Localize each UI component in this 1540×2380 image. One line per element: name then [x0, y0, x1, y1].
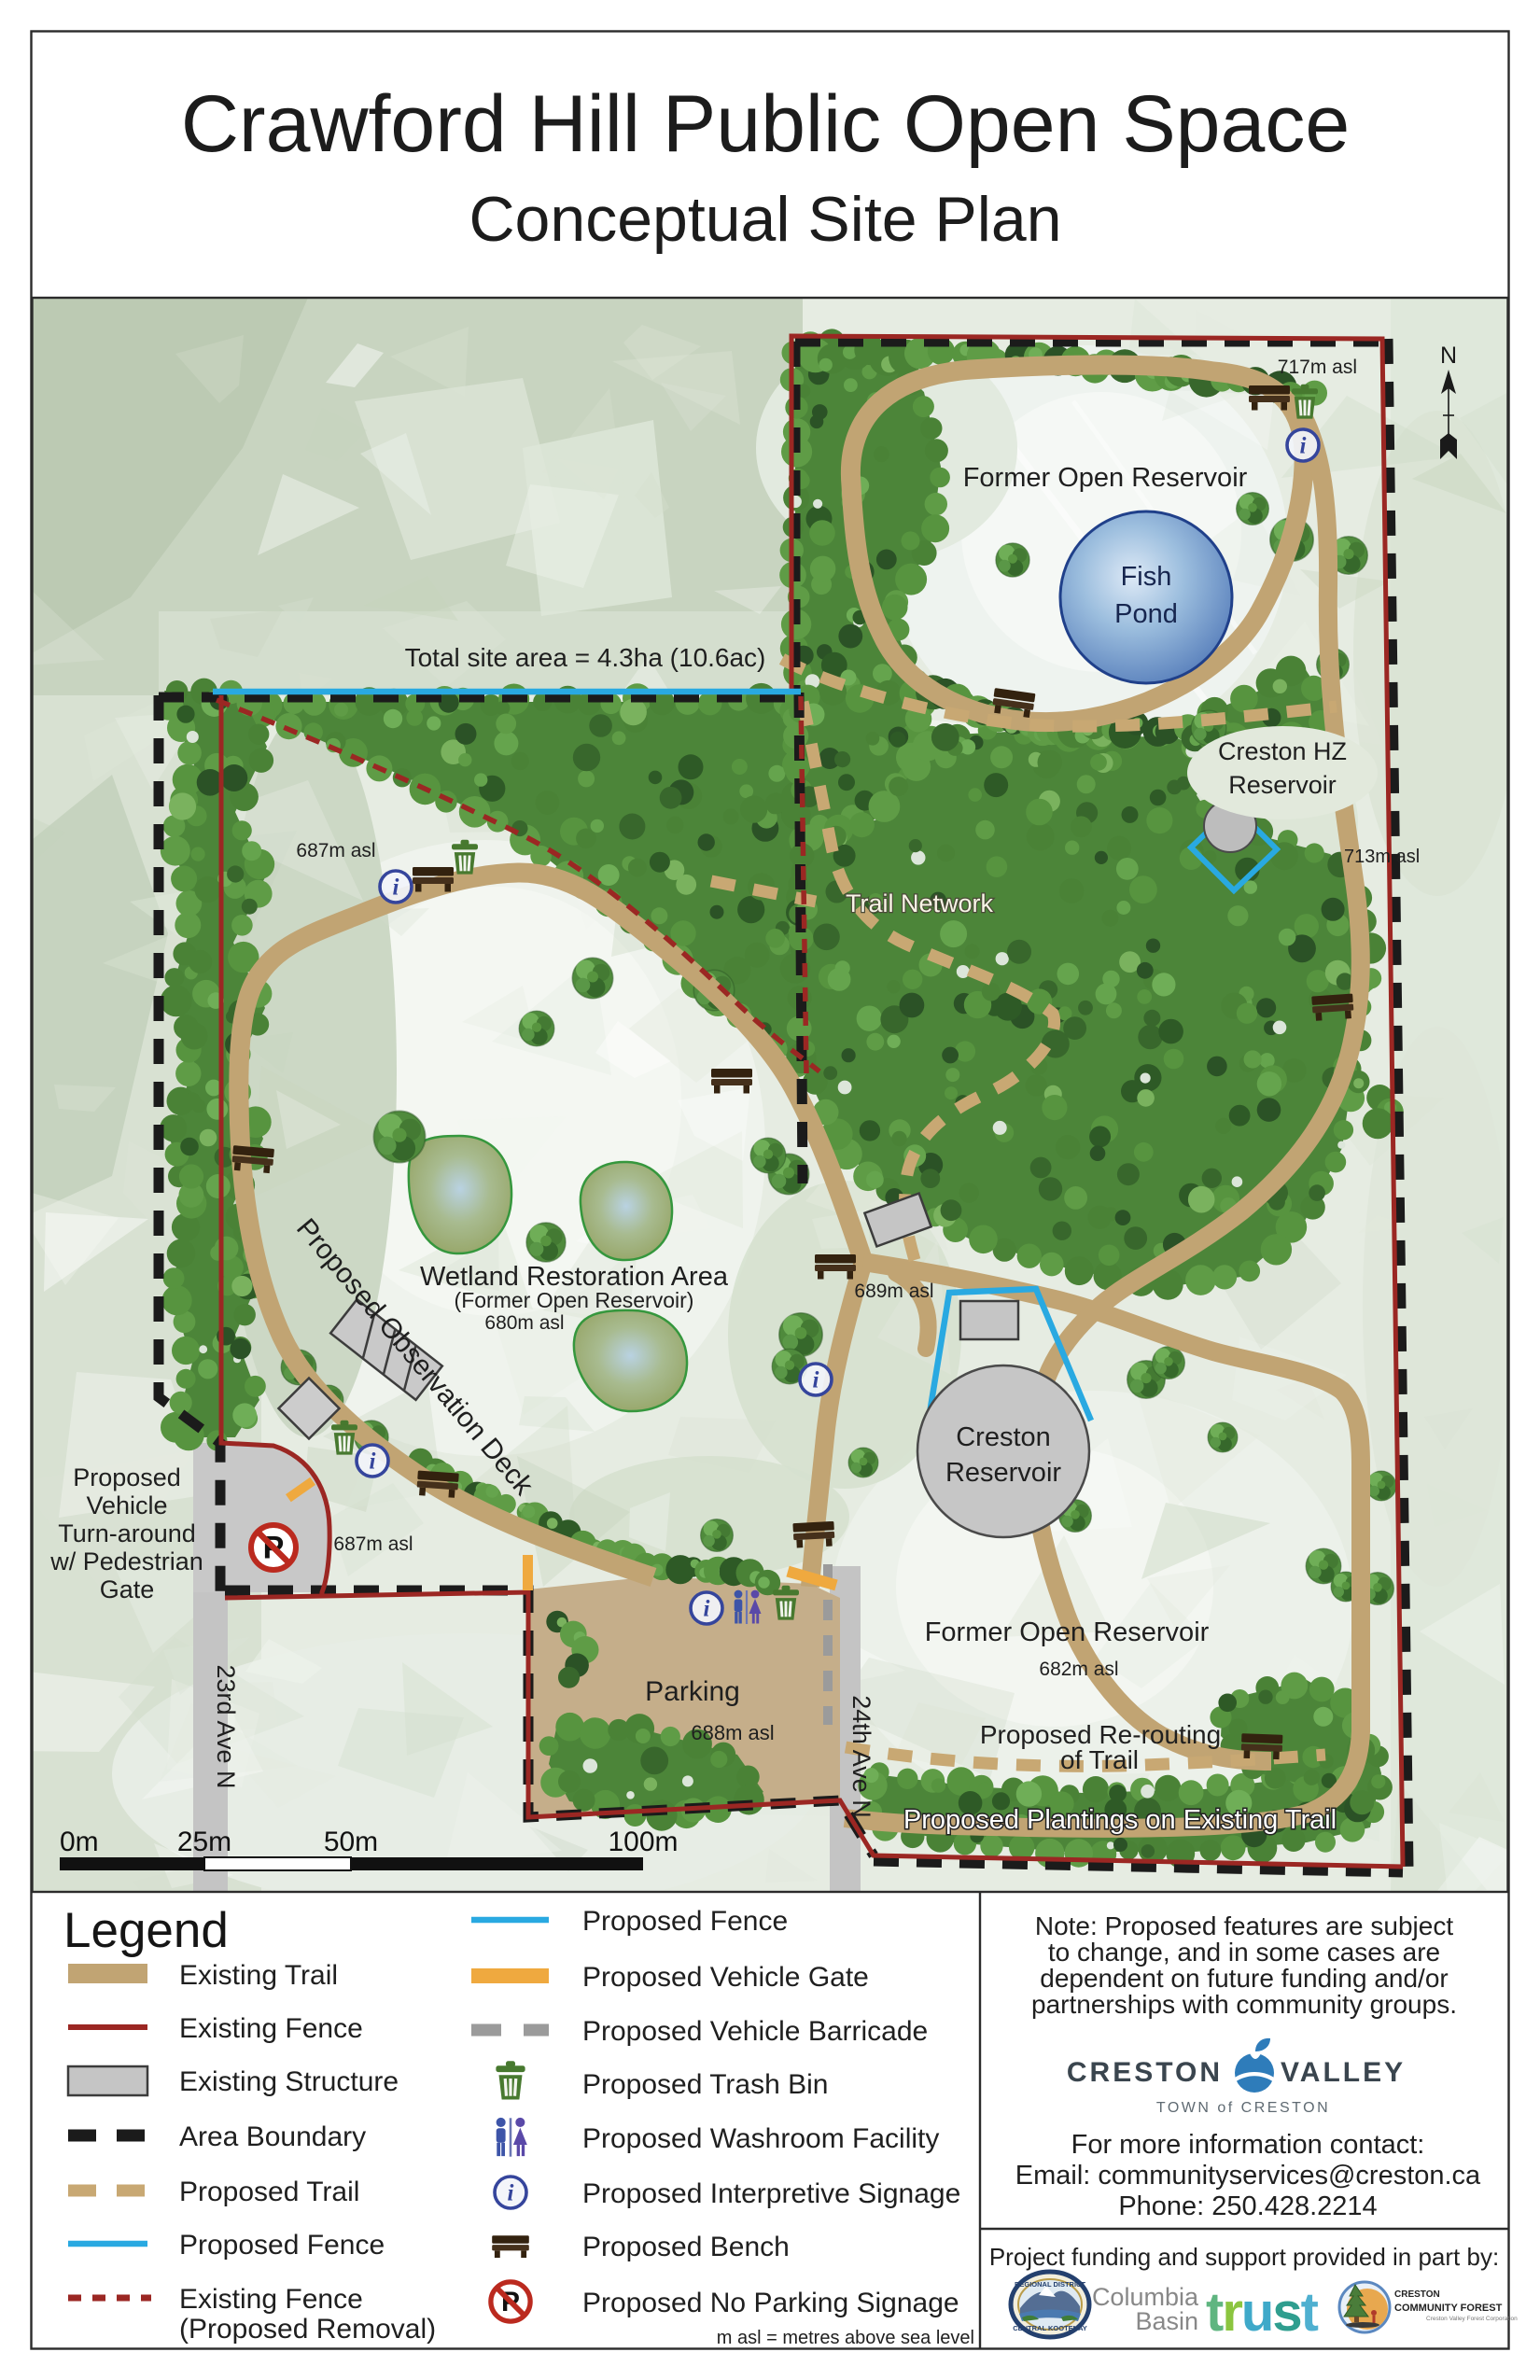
svg-text:Proposed Trash Bin: Proposed Trash Bin: [582, 2069, 828, 2100]
svg-text:CRESTON: CRESTON: [1394, 2289, 1440, 2300]
svg-text:partnerships with community gr: partnerships with community groups.: [1031, 1990, 1457, 2019]
svg-text:Proposed Fence: Proposed Fence: [582, 1906, 788, 1937]
svg-text:Vehicle: Vehicle: [86, 1491, 167, 1519]
svg-text:Proposed No Parking Signage: Proposed No Parking Signage: [582, 2288, 959, 2318]
svg-text:Reservoir: Reservoir: [945, 1458, 1061, 1488]
svg-text:Basin: Basin: [1135, 2307, 1198, 2335]
svg-text:Proposed Fence: Proposed Fence: [179, 2230, 385, 2261]
svg-text:25m: 25m: [177, 1827, 231, 1857]
svg-text:(Former Open Reservoir): (Former Open Reservoir): [455, 1288, 694, 1312]
svg-text:COMMUNITY FOREST: COMMUNITY FOREST: [1394, 2303, 1503, 2314]
svg-text:Proposed Washroom Facility: Proposed Washroom Facility: [582, 2123, 939, 2154]
svg-text:Parking: Parking: [645, 1676, 740, 1707]
svg-text:50m: 50m: [324, 1827, 378, 1857]
svg-text:Existing Structure: Existing Structure: [179, 2066, 399, 2097]
svg-text:of Trail: of Trail: [1060, 1745, 1139, 1774]
svg-text:Proposed Vehicle Barricade: Proposed Vehicle Barricade: [582, 2016, 928, 2047]
svg-text:Former Open Reservoir: Former Open Reservoir: [925, 1617, 1210, 1647]
svg-text:689m asl: 689m asl: [854, 1281, 933, 1302]
svg-text:m asl = metres above sea level: m asl = metres above sea level: [717, 2328, 974, 2348]
svg-text:Creston HZ: Creston HZ: [1218, 737, 1347, 765]
svg-text:(Proposed Removal): (Proposed Removal): [179, 2314, 436, 2345]
svg-text:w/ Pedestrian: w/ Pedestrian: [49, 1547, 203, 1575]
svg-text:Existing Fence: Existing Fence: [179, 2013, 363, 2044]
svg-text:CRESTON: CRESTON: [1067, 2057, 1223, 2088]
svg-text:Proposed Interpretive Signage: Proposed Interpretive Signage: [582, 2178, 960, 2209]
svg-text:Legend: Legend: [63, 1903, 229, 1958]
svg-text:Existing Fence: Existing Fence: [179, 2284, 363, 2315]
svg-text:100m: 100m: [608, 1827, 678, 1857]
svg-text:Reservoir: Reservoir: [1228, 771, 1337, 799]
svg-text:713m asl: 713m asl: [1344, 847, 1420, 867]
svg-text:Fish: Fish: [1121, 562, 1172, 592]
svg-text:Phone: 250.428.2214: Phone: 250.428.2214: [1118, 2191, 1377, 2221]
svg-text:REGIONAL DISTRICT: REGIONAL DISTRICT: [1015, 2280, 1086, 2289]
svg-text:23rd Ave N: 23rd Ave N: [212, 1664, 240, 1788]
svg-text:Proposed Bench: Proposed Bench: [582, 2232, 790, 2262]
svg-text:For more information contact:: For more information contact:: [1071, 2130, 1425, 2160]
svg-text:Project funding and support pr: Project funding and support provided in …: [989, 2243, 1499, 2271]
svg-text:Proposed Trail: Proposed Trail: [179, 2177, 359, 2207]
svg-text:680m asl: 680m asl: [484, 1312, 564, 1334]
svg-text:Pond: Pond: [1114, 599, 1178, 629]
svg-text:Proposed Plantings on Existing: Proposed Plantings on Existing Trail: [903, 1805, 1337, 1835]
svg-text:Former Open Reservoir: Former Open Reservoir: [963, 463, 1248, 493]
svg-text:717m asl: 717m asl: [1278, 357, 1357, 378]
svg-text:687m asl: 687m asl: [333, 1533, 413, 1555]
svg-text:Conceptual Site Plan: Conceptual Site Plan: [469, 184, 1061, 255]
svg-text:Turn-around: Turn-around: [58, 1519, 196, 1547]
svg-text:Proposed: Proposed: [73, 1463, 181, 1491]
svg-text:TOWN of CRESTON: TOWN of CRESTON: [1156, 2100, 1330, 2116]
svg-text:682m asl: 682m asl: [1039, 1659, 1118, 1680]
svg-text:0m: 0m: [60, 1827, 99, 1857]
svg-text:dependent on future funding an: dependent on future funding and/or: [1040, 1964, 1448, 1993]
svg-text:Trail Network: Trail Network: [846, 889, 994, 917]
svg-text:24th Ave N: 24th Ave N: [847, 1695, 875, 1818]
svg-text:Note: Proposed features are su: Note: Proposed features are subject: [1035, 1911, 1453, 1940]
svg-text:N: N: [1440, 343, 1457, 369]
svg-text:Existing Trail: Existing Trail: [179, 1960, 338, 1991]
svg-text:trust: trust: [1206, 2282, 1319, 2343]
svg-text:CENTRAL KOOTENAY: CENTRAL KOOTENAY: [1013, 2324, 1087, 2332]
svg-text:Crawford Hill Public Open Spac: Crawford Hill Public Open Space: [181, 79, 1350, 169]
svg-text:687m asl: 687m asl: [296, 840, 375, 861]
svg-text:Gate: Gate: [100, 1575, 155, 1603]
svg-text:688m asl: 688m asl: [691, 1721, 774, 1744]
svg-text:VALLEY: VALLEY: [1281, 2057, 1406, 2088]
svg-text:to change, and in some cases a: to change, and in some cases are: [1048, 1938, 1440, 1967]
svg-text:Total site area = 4.3ha (10.6a: Total site area = 4.3ha (10.6ac): [405, 643, 766, 672]
svg-text:Email: communityservices@crest: Email: communityservices@creston.ca: [1015, 2161, 1481, 2191]
svg-text:Area Boundary: Area Boundary: [179, 2121, 366, 2152]
svg-text:Proposed Vehicle Gate: Proposed Vehicle Gate: [582, 1962, 869, 1993]
svg-text:Creston: Creston: [956, 1422, 1051, 1452]
svg-text:Creston Valley Forest Corporat: Creston Valley Forest Corporation: [1426, 2316, 1518, 2322]
